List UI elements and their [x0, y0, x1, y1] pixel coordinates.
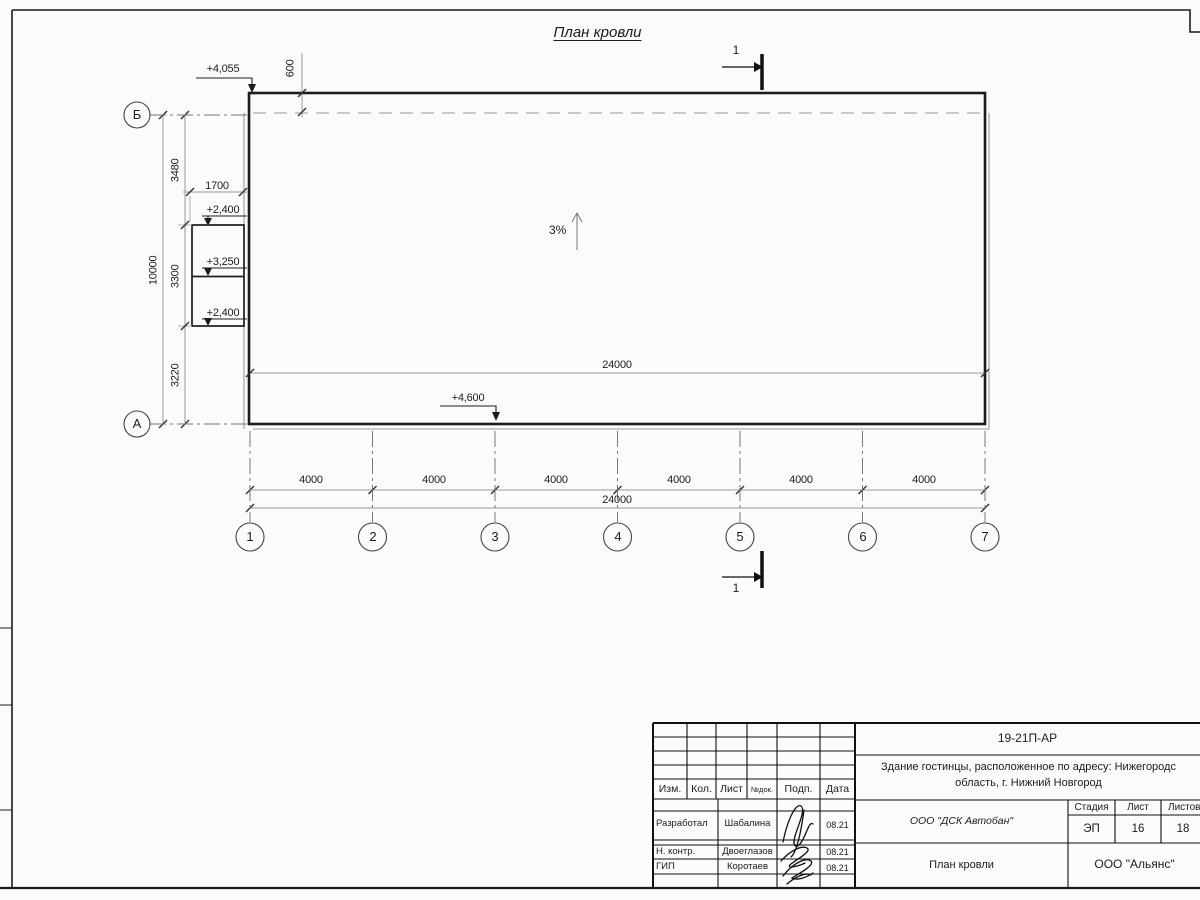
tb-col-ndok: №док.: [747, 786, 777, 795]
tb-name-developer: Шабалина: [718, 819, 777, 830]
axis-lines: [150, 115, 985, 522]
dim-span-2: 4000: [408, 474, 460, 487]
elevation-top-left: +4,055: [196, 63, 250, 76]
axis-label-7: 7: [971, 530, 999, 545]
tb-date-gip: 08.21: [820, 863, 855, 873]
tb-col-kol: Кол.: [687, 783, 716, 795]
tb-list-header: Лист: [1115, 802, 1161, 814]
slope-label: 3%: [549, 224, 566, 238]
axis-label-5: 5: [726, 530, 754, 545]
dim-total-vertical-10000: 10000: [148, 243, 161, 297]
section-mark-top-label: 1: [729, 44, 743, 58]
tb-list-value: 16: [1115, 823, 1161, 836]
tb-role-developer: Разработал: [656, 819, 708, 830]
axis-label-2: 2: [359, 530, 387, 545]
tb-role-gip: ГИП: [656, 862, 675, 873]
tb-col-list: Лист: [716, 783, 747, 795]
dim-seg-3220: 3220: [170, 353, 183, 397]
tb-organization: ООО "Альянс": [1069, 858, 1200, 872]
dim-span-4: 4000: [653, 474, 705, 487]
dim-total-24000: 24000: [591, 494, 643, 507]
tb-role-ncontr: Н. контр.: [656, 847, 695, 858]
tb-listov-header: Листов: [1168, 802, 1200, 814]
sheet-frame: [0, 10, 1200, 888]
dim-span-1: 4000: [285, 474, 337, 487]
elevation-canopy-top: +2,400: [200, 204, 246, 217]
roof-outline: [249, 93, 985, 424]
drawing-sheet: План кровли +4,055 600 1700 +2,400 +3,25…: [0, 0, 1200, 900]
elevation-canopy-mid: +3,250: [200, 256, 246, 269]
tb-name-gip: Коротаев: [718, 862, 777, 873]
axis-label-a: А: [123, 417, 151, 432]
tb-stage-header: Стадия: [1068, 802, 1115, 814]
axis-label-4: 4: [604, 530, 632, 545]
tb-col-podp: Подп.: [777, 783, 820, 795]
dimension-lines: [163, 53, 985, 508]
dim-span-5: 4000: [775, 474, 827, 487]
dim-span-3: 4000: [530, 474, 582, 487]
tb-col-data: Дата: [820, 783, 855, 795]
dim-inner-24000: 24000: [591, 359, 643, 372]
plan-title: План кровли: [520, 24, 675, 41]
tb-col-izm: Изм.: [653, 783, 687, 795]
tb-date-ncontr: 08.21: [820, 847, 855, 857]
elevation-bottom: +4,600: [441, 392, 495, 405]
tb-sheet-name: План кровли: [857, 859, 1066, 872]
tb-project-line2: область, г. Нижний Новгород: [857, 777, 1200, 790]
axis-label-b: Б: [123, 108, 151, 123]
section-mark-bottom-label: 1: [729, 582, 743, 596]
tb-doc-number: 19-21П-АР: [855, 732, 1200, 746]
dim-canopy-1700: 1700: [190, 180, 244, 193]
axis-label-3: 3: [481, 530, 509, 545]
tb-date-developer: 08.21: [820, 820, 855, 830]
dim-seg-3300: 3300: [170, 254, 183, 298]
dim-span-6: 4000: [898, 474, 950, 487]
dimension-ticks: [159, 89, 989, 512]
tb-listov-value: 18: [1161, 823, 1200, 836]
slope-arrow: [572, 213, 582, 250]
dim-seg-3480: 3480: [170, 148, 183, 192]
wall-hidden-edges: [244, 113, 989, 429]
tb-stage-value: ЭП: [1068, 823, 1115, 836]
axis-label-6: 6: [849, 530, 877, 545]
elevation-canopy-low: +2,400: [200, 307, 246, 320]
tb-name-ncontr: Двоеглазов: [718, 847, 777, 858]
signature-dvoeglazov: [781, 847, 813, 884]
tb-company: ООО "ДСК Автобан": [857, 815, 1066, 827]
axis-label-1: 1: [236, 530, 264, 545]
tb-project-line1: Здание гостинцы, расположенное по адресу…: [857, 761, 1200, 774]
dim-overhang-600: 600: [285, 48, 298, 88]
